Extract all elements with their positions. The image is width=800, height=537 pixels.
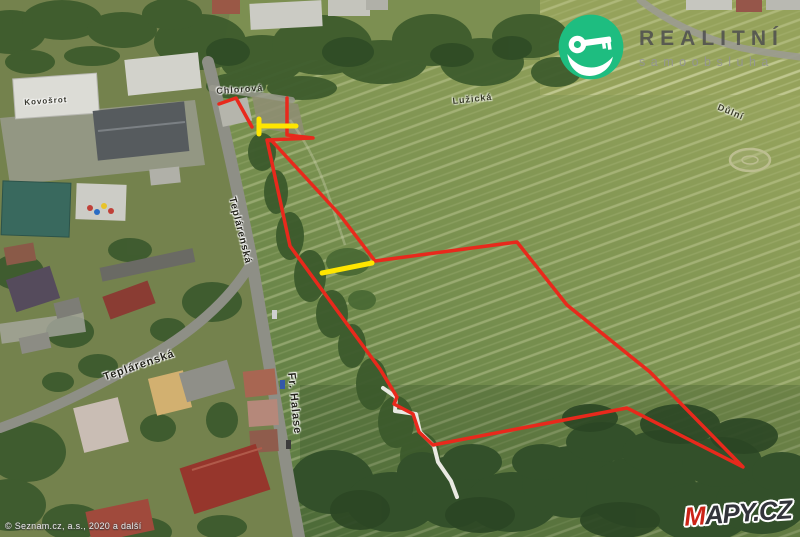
logo-title: REALITNÍ: [639, 27, 784, 50]
mapycz-logo-m: M: [683, 500, 706, 531]
key-in-hand-icon: [556, 12, 626, 82]
aerial-map-screenshot: Kovošrot Chlorová Lužická Důlní Tepláren…: [0, 0, 800, 537]
mapycz-logo-rest: APY.CZ: [704, 494, 793, 530]
realitni-samoobsluha-logo: REALITNÍ samoobsluha: [556, 12, 784, 82]
map-copyright: © Seznam.cz, a.s., 2020 a další: [5, 521, 142, 531]
logo-subtitle: samoobsluha: [639, 55, 784, 69]
field-ring-feature: [730, 149, 770, 171]
